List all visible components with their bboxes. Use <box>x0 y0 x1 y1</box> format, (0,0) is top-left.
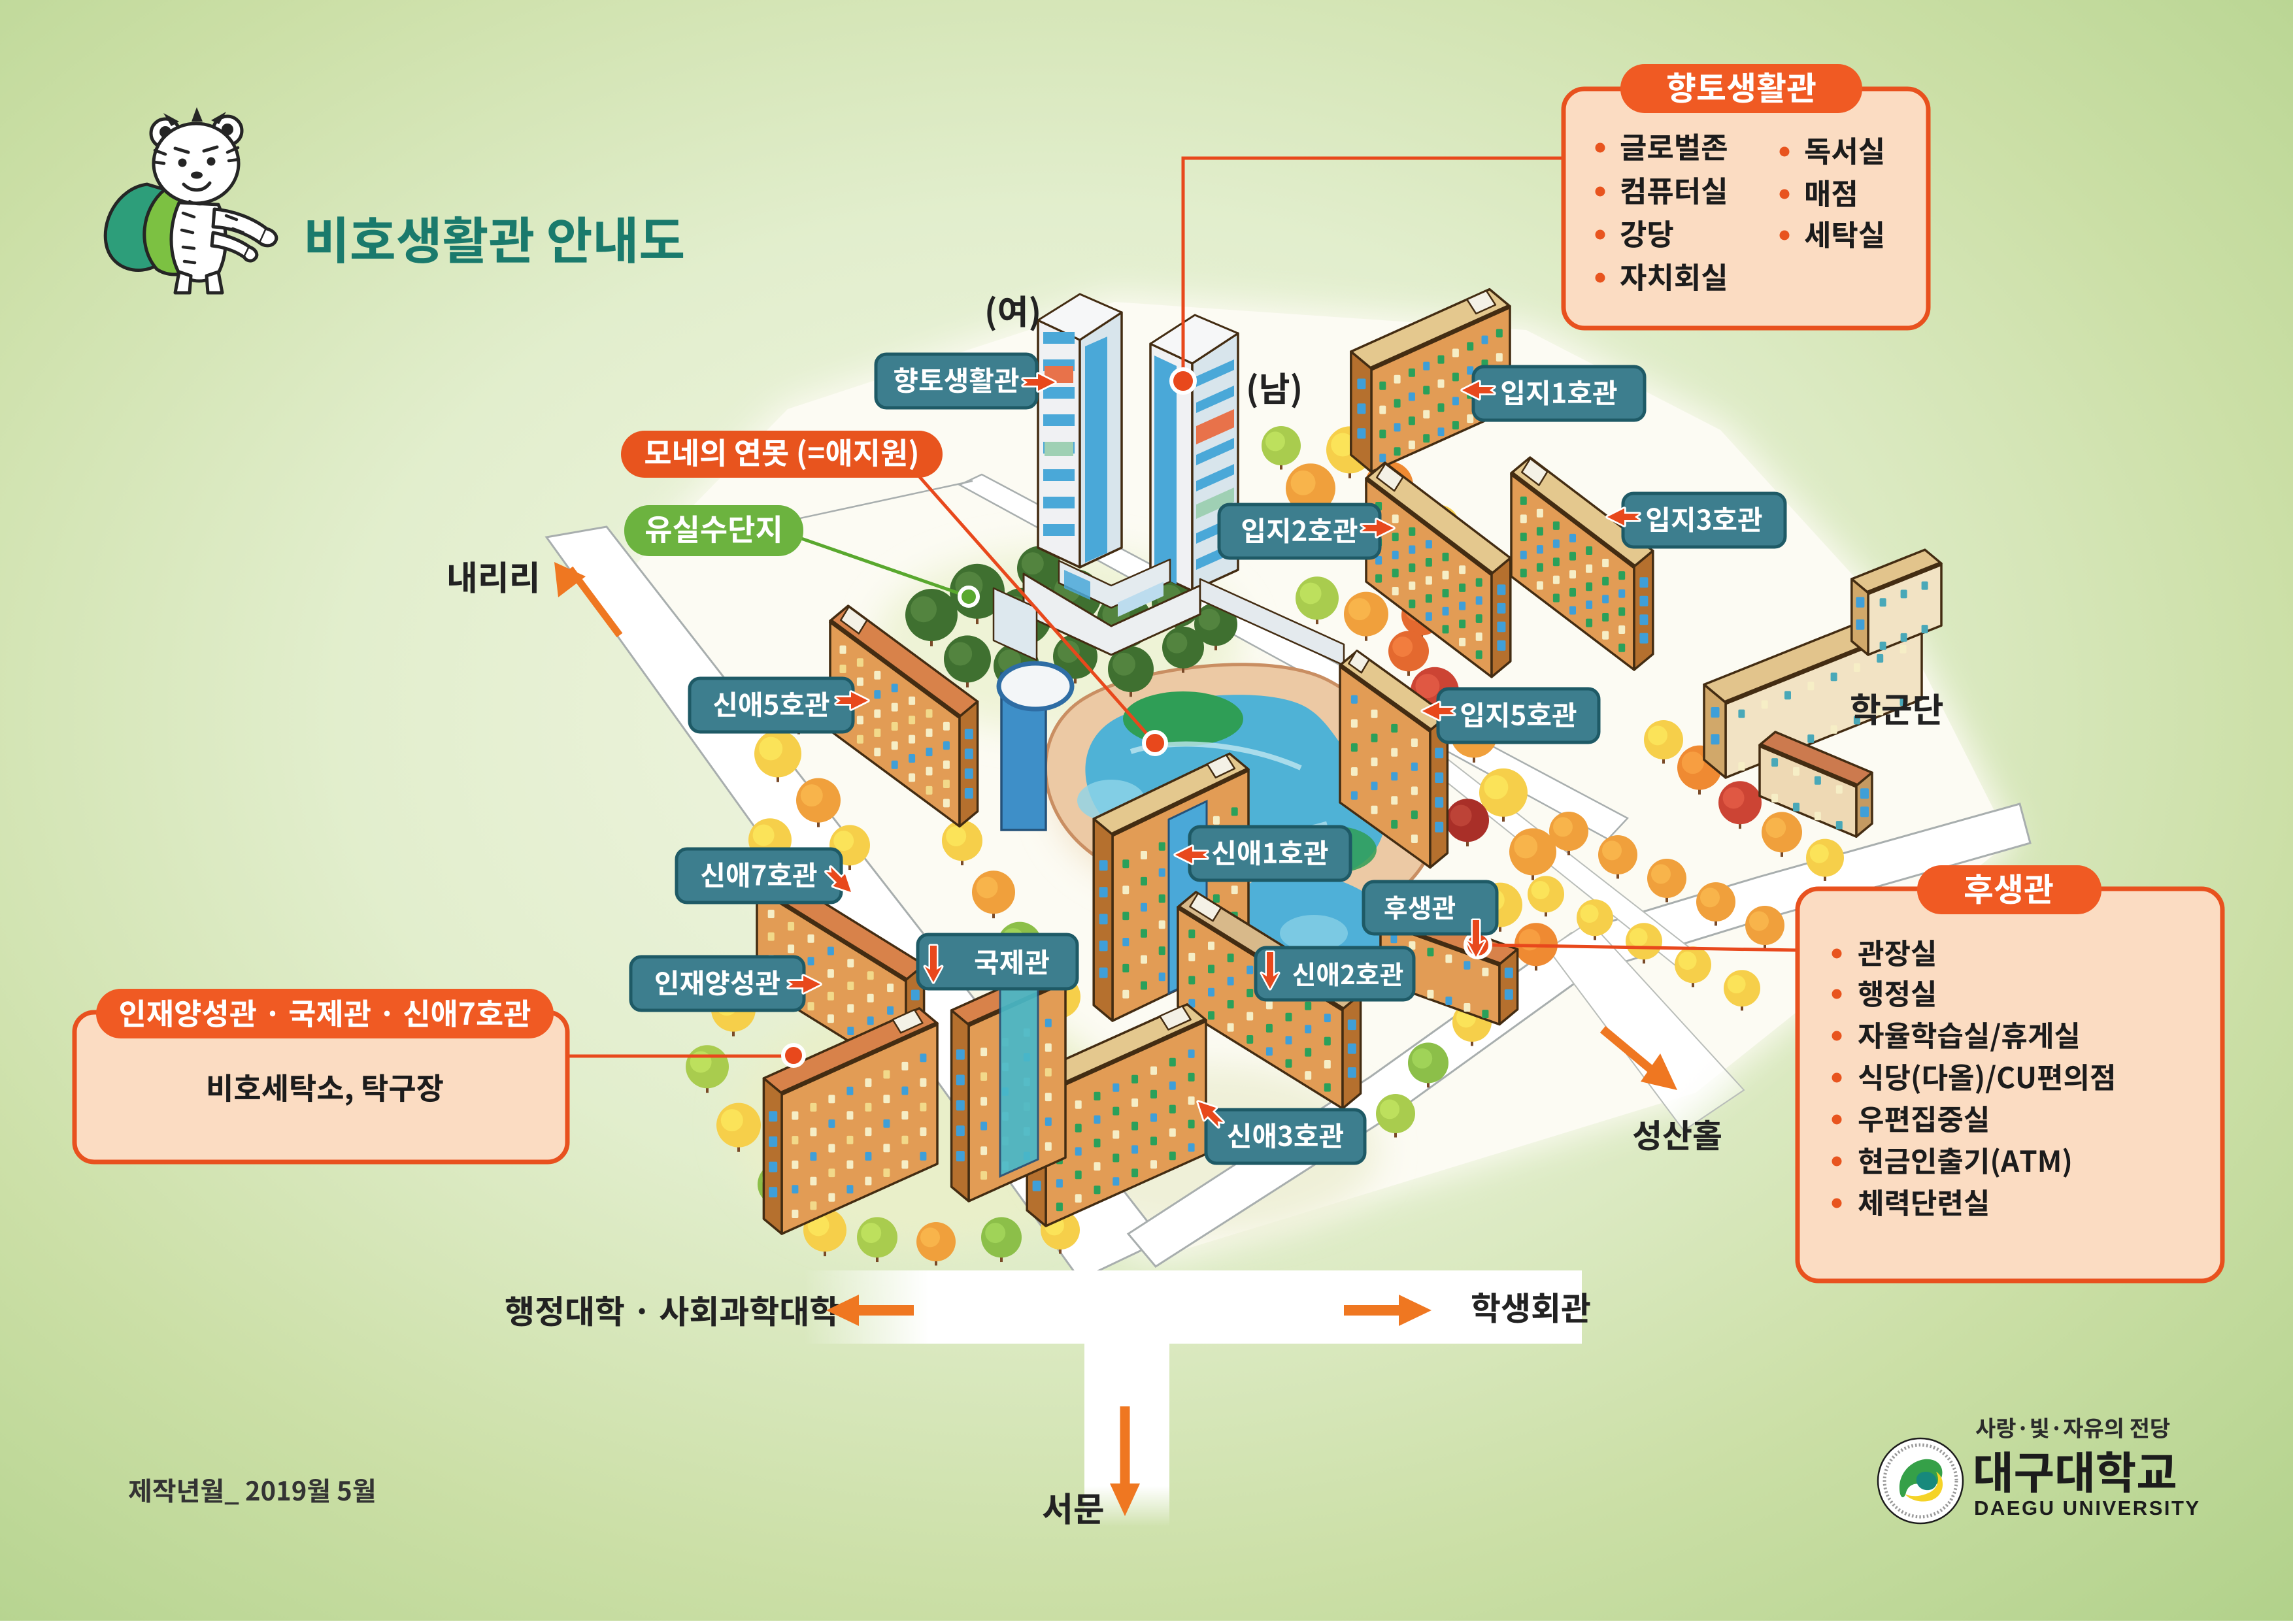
svg-text:DAEGU UNIVERSITY: DAEGU UNIVERSITY <box>1974 1497 2201 1519</box>
